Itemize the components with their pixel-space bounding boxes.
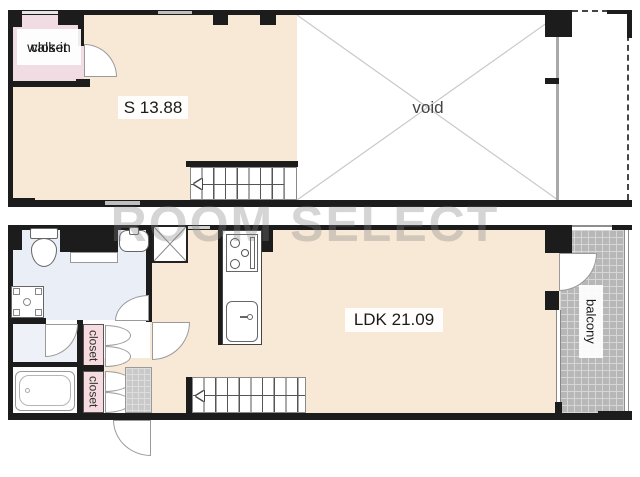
closet-upper-label: closet bbox=[87, 330, 101, 361]
burner bbox=[241, 249, 249, 257]
ldk-label: LDK 21.09 bbox=[345, 308, 443, 332]
counter-ledge bbox=[70, 252, 118, 263]
burner bbox=[230, 238, 240, 248]
closet-upper: closet bbox=[83, 324, 104, 367]
grill bbox=[250, 237, 255, 269]
stairs-center-line bbox=[193, 395, 305, 396]
washer-pan-corner bbox=[35, 309, 42, 316]
balcony-top-edge bbox=[572, 225, 612, 227]
washer-pan-corner bbox=[13, 288, 20, 295]
balcony-window-wall bbox=[556, 310, 561, 413]
stairs-direction-arrow bbox=[196, 391, 204, 401]
entrance-door-arc bbox=[113, 420, 151, 456]
pillar bbox=[8, 225, 22, 250]
lower-stairs bbox=[192, 377, 306, 413]
balcony-wall-stub bbox=[545, 291, 559, 310]
stove-unit bbox=[226, 234, 258, 272]
duct-shaft bbox=[152, 225, 188, 263]
closet-lower: closet bbox=[83, 371, 104, 413]
lower-bottom-wall bbox=[8, 413, 632, 420]
kitchen-sink bbox=[226, 301, 258, 342]
washer-pan bbox=[11, 286, 44, 318]
lower-top-wall-right bbox=[612, 225, 632, 230]
bath-top-wall bbox=[8, 362, 80, 367]
balcony-outer-rail bbox=[624, 230, 629, 413]
bathtub-drain bbox=[25, 388, 30, 393]
floor-plan: walk-in closet S 13.88 void bbox=[0, 0, 640, 477]
lower-floor: closet closet bbox=[0, 0, 640, 477]
washer-pan-corner bbox=[35, 288, 42, 295]
sink-faucet-stub bbox=[240, 316, 248, 318]
balcony-wall-stub bbox=[555, 402, 562, 413]
balcony-label: balcony bbox=[579, 285, 603, 358]
washer-drain bbox=[23, 298, 31, 306]
lower-bottom-wall-right bbox=[598, 411, 632, 420]
washer-pan-corner bbox=[13, 309, 20, 316]
bathtub-outer bbox=[15, 371, 75, 411]
closet-lower-label: closet bbox=[87, 376, 101, 407]
closet-door-leaf bbox=[105, 325, 131, 346]
entrance-tile bbox=[125, 367, 152, 413]
duct-cross-lines bbox=[154, 227, 186, 261]
washer-nook-wall bbox=[8, 318, 46, 324]
kitchen-counter bbox=[222, 230, 262, 345]
burner bbox=[230, 259, 240, 269]
counter-block bbox=[60, 227, 118, 252]
basin-faucet bbox=[129, 227, 139, 235]
pillar-large bbox=[545, 225, 572, 253]
balcony-label-text: balcony bbox=[584, 299, 599, 344]
